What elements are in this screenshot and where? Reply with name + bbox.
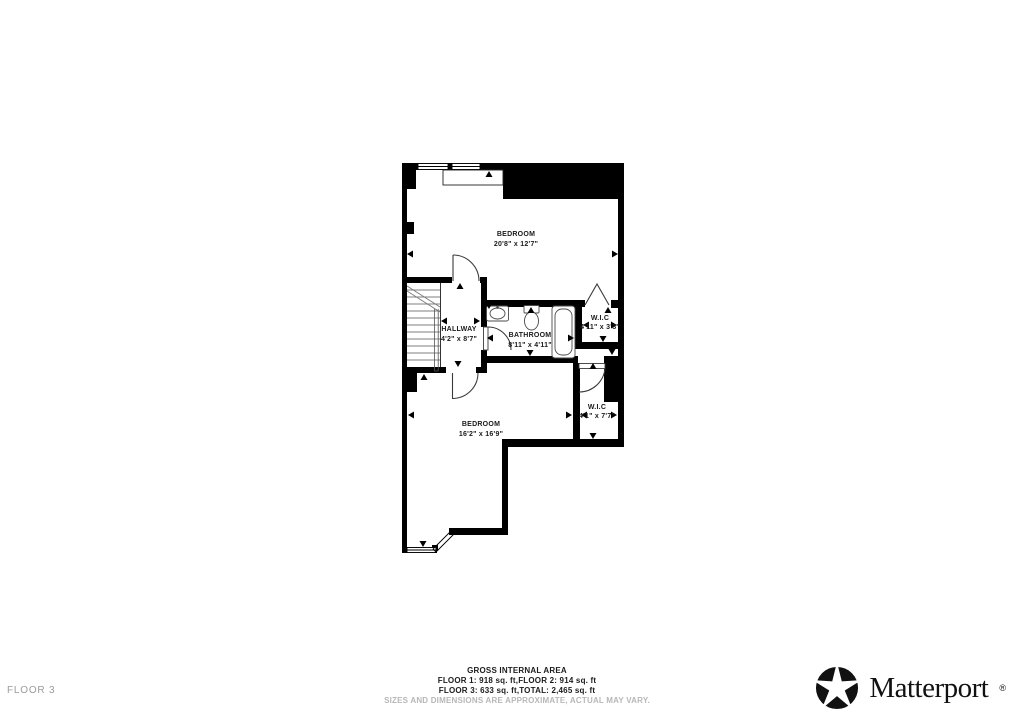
window xyxy=(418,164,448,170)
door-wic1-bifold xyxy=(585,284,609,305)
dimension-arrow-icon xyxy=(527,350,534,356)
staircase xyxy=(407,283,441,371)
svg-text:BEDROOM: BEDROOM xyxy=(462,421,500,428)
svg-text:4'1" x 7'7": 4'1" x 7'7" xyxy=(579,413,615,420)
door-bedroom2 xyxy=(453,373,479,399)
windows xyxy=(407,164,480,553)
dimension-arrow-icon xyxy=(590,433,597,439)
svg-text:16'2" x 16'9": 16'2" x 16'9" xyxy=(459,431,503,438)
matterport-wordmark: Matterport xyxy=(869,672,988,705)
floor-label: FLOOR 3 xyxy=(7,685,55,696)
dimension-arrow-icon xyxy=(600,336,607,342)
room-label-wic1: W.I.C 4'11" x 3'8" xyxy=(580,315,620,331)
dimension-arrow-icon xyxy=(609,349,616,355)
floorplan-page: BEDROOM 20'8" x 12'7" HALLWAY 4'2" x 8'7… xyxy=(0,0,1024,724)
matterport-logo: Matterport ® xyxy=(815,663,1006,713)
dimension-arrow-icon xyxy=(421,374,428,380)
dimension-arrow-icon xyxy=(605,307,612,313)
room-label-wic2: W.I.C 4'1" x 7'7" xyxy=(579,404,615,420)
door-bedroom1 xyxy=(453,255,479,281)
dimension-arrow-icon xyxy=(612,251,618,258)
matterport-pinwheel-icon xyxy=(815,665,859,711)
bathtub xyxy=(552,306,575,358)
dimension-arrow-icon xyxy=(566,412,572,419)
svg-text:4'11" x 3'8": 4'11" x 3'8" xyxy=(580,324,620,331)
dimension-arrow-icon xyxy=(420,541,427,547)
svg-text:HALLWAY: HALLWAY xyxy=(441,326,476,333)
svg-text:4'2" x 8'7": 4'2" x 8'7" xyxy=(441,336,477,343)
svg-text:BEDROOM: BEDROOM xyxy=(497,231,535,238)
room-label-bedroom2: BEDROOM 16'2" x 16'9" xyxy=(459,421,503,438)
bulkhead-outline xyxy=(443,170,503,185)
dimension-arrow-icon xyxy=(455,361,462,367)
dimension-arrow-icon xyxy=(457,283,464,289)
sink xyxy=(487,306,509,321)
window xyxy=(407,548,436,553)
room-label-bedroom1: BEDROOM 20'8" x 12'7" xyxy=(494,231,538,248)
floor-plan-drawing: BEDROOM 20'8" x 12'7" HALLWAY 4'2" x 8'7… xyxy=(0,0,1024,724)
svg-text:BATHROOM: BATHROOM xyxy=(509,332,552,339)
walls xyxy=(402,163,624,553)
door-bathroom xyxy=(484,327,512,350)
svg-text:W.I.C: W.I.C xyxy=(591,315,609,322)
dimension-arrow-icon xyxy=(441,318,447,325)
room-label-hallway: HALLWAY 4'2" x 8'7" xyxy=(441,326,477,343)
room-label-bathroom: BATHROOM 8'11" x 4'11" xyxy=(508,332,552,349)
window xyxy=(452,164,480,170)
svg-text:W.I.C: W.I.C xyxy=(588,404,606,411)
svg-text:8'11" x 4'11": 8'11" x 4'11" xyxy=(508,342,552,349)
dimension-arrow-icon xyxy=(474,318,480,325)
svg-text:20'8" x 12'7": 20'8" x 12'7" xyxy=(494,241,538,248)
room-labels: BEDROOM 20'8" x 12'7" HALLWAY 4'2" x 8'7… xyxy=(441,231,620,438)
dimension-arrow-icon xyxy=(408,412,414,419)
dimension-arrow-icon xyxy=(407,251,413,258)
registered-trademark-symbol: ® xyxy=(999,683,1006,693)
